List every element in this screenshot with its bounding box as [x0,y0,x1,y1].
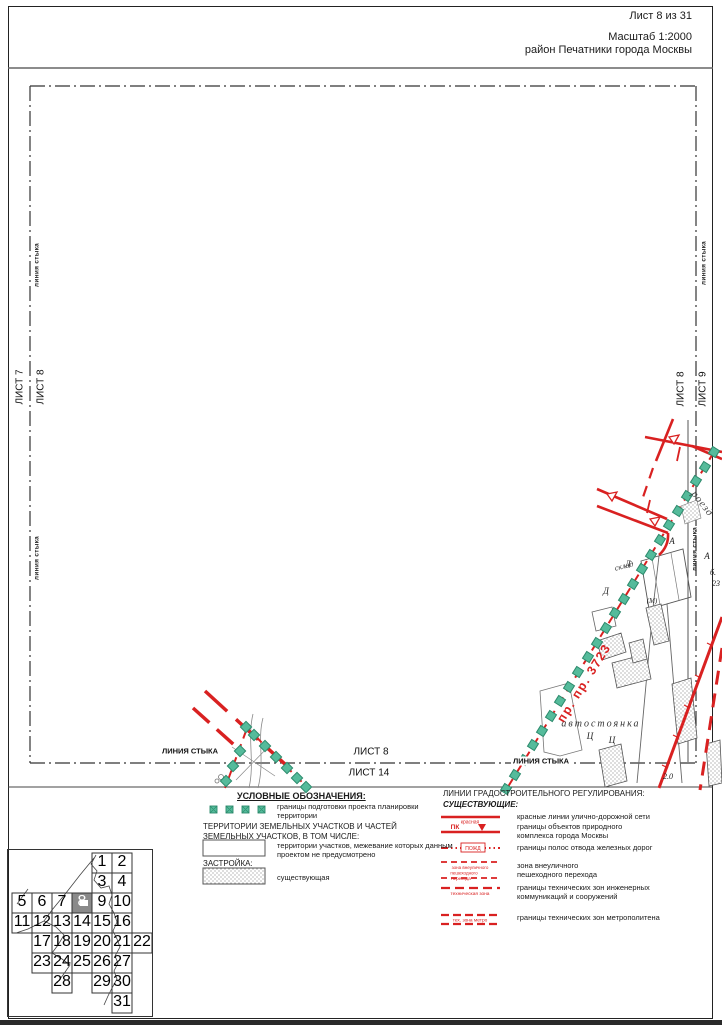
legend-boundary-label: границы подготовки проекта планировки те… [277,803,452,821]
index-cell: 20 [93,933,111,950]
index-cell: 14 [73,913,91,930]
index-cell: 19 [73,933,91,950]
legend-built-item: существующая [277,874,330,883]
legend-title: УСЛОВНЫЕ ОБОЗНАЧЕНИЯ: [237,791,366,801]
legend-territories-heading: ТЕРРИТОРИИ ЗЕМЕЛЬНЫХ УЧАСТКОВ И ЧАСТЕЙ З… [203,822,408,841]
regulation-title: ЛИНИИ ГРАДОСТРОИТЕЛЬНОГО РЕГУЛИРОВАНИЯ: [443,789,713,799]
index-cell-current: 8 [78,893,87,910]
regulation-item-metro: границы технических зон метрополитена [517,914,712,923]
junction-label-bottom-right: ЛИНИЯ СТЫКА [511,757,571,766]
letter-a-1: А [668,536,675,546]
index-cell: 24 [53,953,71,970]
junction-label-left-top: линия стыка [34,243,41,287]
index-cell: 10 [113,893,131,910]
index-cell: 29 [93,973,111,990]
metro-mark: (М) [647,597,658,605]
parking-label: автостоянка [561,719,640,730]
map-scale: Масштаб 1:2000 [525,31,692,44]
letter-d-1: Д [602,586,610,596]
sheet-label-bottom-outer: ЛИСТ 14 [349,768,390,779]
index-cell: 6 [38,893,47,910]
index-cell: 30 [113,973,131,990]
sym-tech-label: техническая зона [451,892,490,897]
sheet-label-left-outer: ЛИСТ 7 [15,369,26,404]
index-cell: 11 [14,913,31,930]
letter-a-2: А [703,551,710,561]
regulation-item-engineering: границы технических зон инженерных комму… [517,884,677,902]
letter-ts-1: Ц [586,731,594,741]
regulation-item-railway: границы полос отвода железных дорог [517,844,712,853]
index-cell: 9 [98,893,107,910]
sheet-number: Лист 8 из 31 [525,10,692,23]
index-cell: 3 [98,873,107,890]
index-cell: 23 [33,953,51,970]
index-cell: 2 [118,853,127,870]
index-cell: 28 [53,973,71,990]
index-cell: 13 [53,913,71,930]
index-cell: 17 [33,933,51,950]
junction-label-left-bottom: линия стыка [34,536,41,580]
sheet-label-left-inner: ЛИСТ 8 [36,369,47,404]
index-cell: 12 [33,913,51,930]
index-cell: 16 [113,913,131,930]
index-cell: 26 [93,953,111,970]
index-cell: 5 [18,893,27,910]
index-cell: 15 [93,913,111,930]
sheet-label-right-outer: ЛИСТ 9 [698,371,709,406]
sym-zone-line3: перехода [451,876,471,881]
index-cell: 7 [58,893,67,910]
letter-ts-2: Ц [608,735,616,745]
note-23: 23 [712,579,720,588]
note-20: 2.0 [663,772,673,781]
index-cell: 22 [133,933,151,950]
project-boundary-markers [220,446,719,794]
sym-zone-line2: пешеходного [450,871,478,876]
legend-built-heading: ЗАСТРОЙКА: [203,859,253,869]
red-lines [193,419,722,790]
sheet-label-right-inner: ЛИСТ 8 [676,371,687,406]
junction-label-right-top: линия стыка [701,241,708,285]
plan-sheet-page: А А Д Д Ц Ц (М) б. 23 2.0 [0,0,722,1025]
index-cell: 4 [118,873,127,890]
sheet-index-map: 1 2 3 4 5 6 7 8 9 10 11 12 13 14 15 16 1… [8,850,153,1017]
legend-territories-item: территории участков, межевание которых д… [277,842,457,860]
index-cell: 21 [113,933,131,950]
index-cell: 31 [113,993,131,1010]
regulation-item-nature-complex: границы объектов природного комплекса го… [517,823,652,841]
note-b: б. [710,568,716,577]
sym-krasnaya-label: красная [461,820,480,826]
sym-pk-label: ПК [451,824,460,831]
index-cell: 25 [73,953,91,970]
sym-zone-line1: зона внеуличного [452,865,489,870]
junction-label-right-bottom: линия стыка [692,527,699,571]
index-cell: 1 [98,853,107,870]
title-block: Лист 8 из 31 Масштаб 1:2000 район Печатн… [525,10,692,57]
regulation-subtitle: СУЩЕСТВУЮЩИЕ: [443,800,518,809]
regulation-item-red-lines: красные линии улично-дорожной сети [517,813,712,822]
sym-metro-label: тех. зона метро [453,919,488,924]
index-cell: 27 [113,953,131,970]
sym-pozhd-label: ПОЖД [465,846,481,852]
index-cell: 18 [53,933,71,950]
sheet-label-bottom-inner: ЛИСТ 8 [353,747,388,758]
regulation-item-pedestrian: зона внеуличного пешеходного перехода [517,862,612,880]
junction-label-bottom-left: ЛИНИЯ СТЫКА [160,747,220,756]
district-name: район Печатники города Москвы [525,44,692,57]
map-artwork: А А Д Д Ц Ц (М) б. 23 2.0 [0,0,722,1025]
